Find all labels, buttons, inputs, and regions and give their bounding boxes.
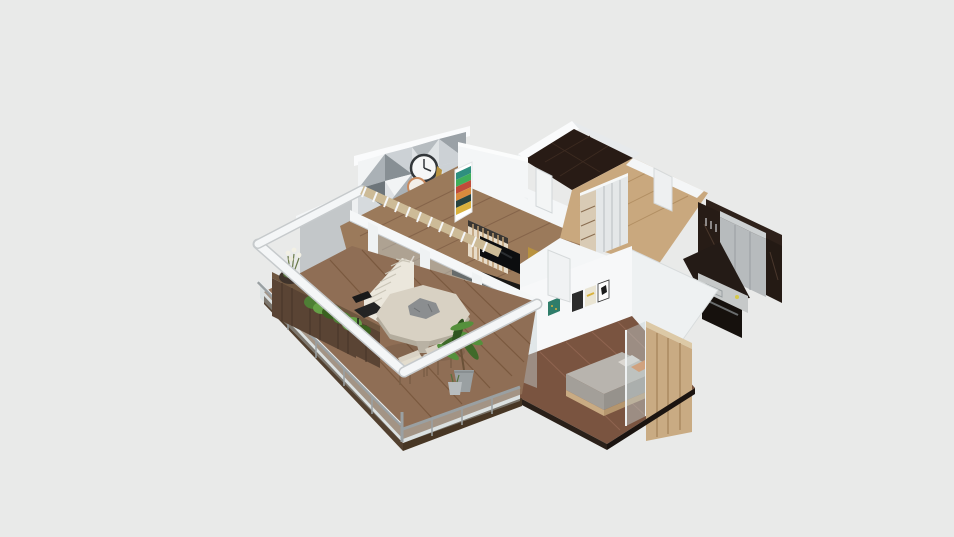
floorplan-render <box>0 0 954 537</box>
bathroom-door <box>536 168 552 213</box>
floorplan-viewport[interactable] <box>0 0 954 537</box>
bedroom-door <box>548 250 570 302</box>
bedroom-glass-panel <box>626 321 646 426</box>
colorful-ladder-shelf <box>455 162 472 222</box>
